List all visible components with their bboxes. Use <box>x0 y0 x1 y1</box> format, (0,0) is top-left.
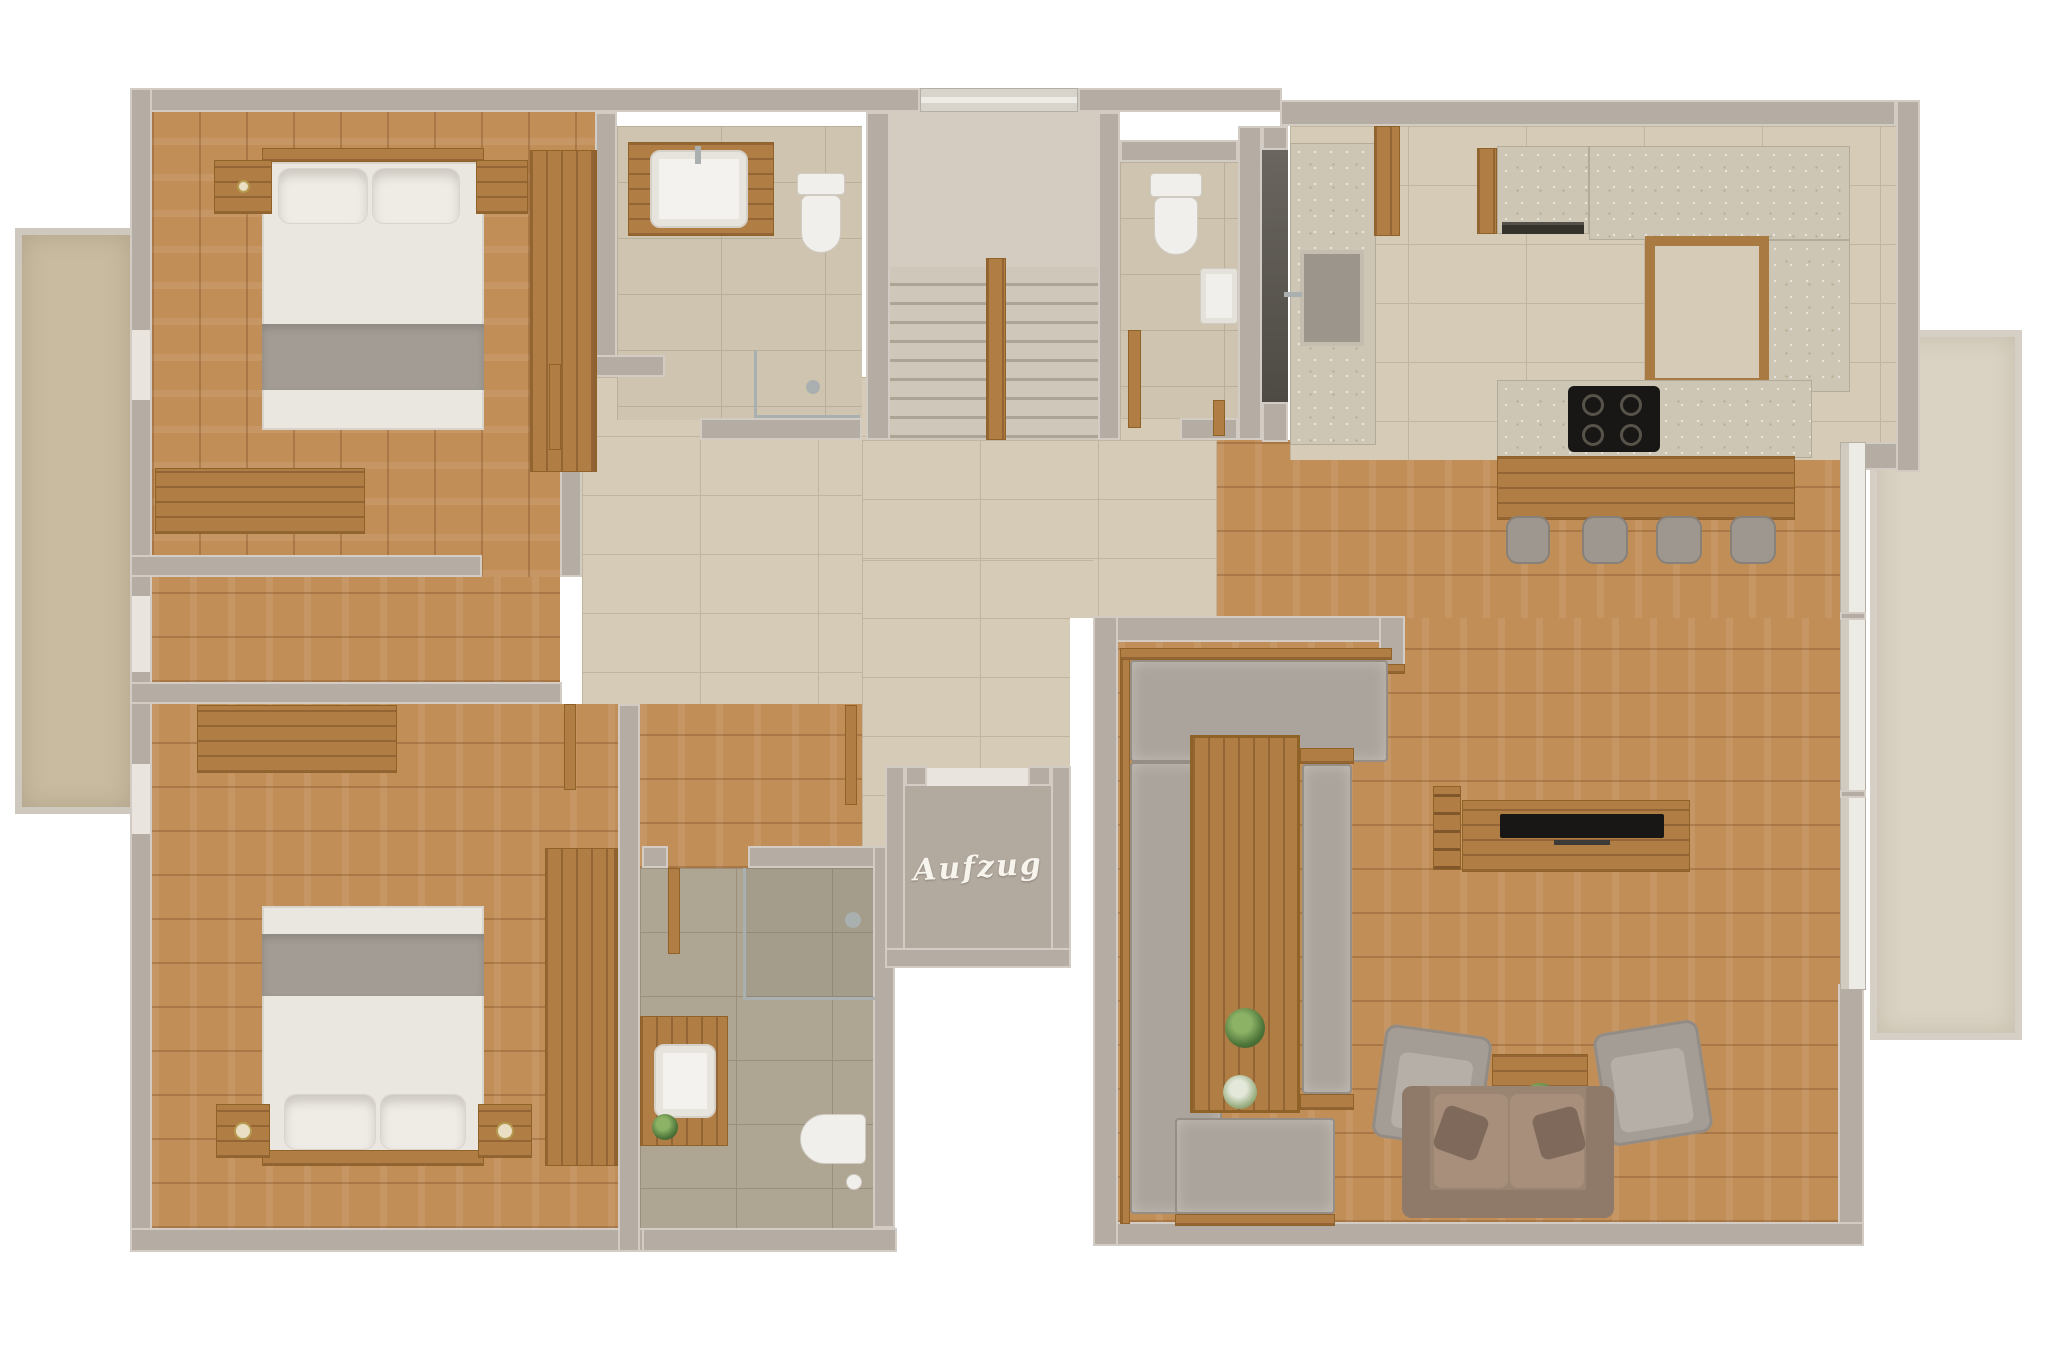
breakfast-bar <box>1497 456 1795 520</box>
kitchen-counter-right <box>1766 240 1850 392</box>
dining-table <box>1190 735 1300 1113</box>
window-mullion-1 <box>1840 612 1866 620</box>
window-mullion-2 <box>1840 790 1866 798</box>
stair-flight-left <box>890 267 988 440</box>
kitchen-sink-faucet <box>1284 292 1302 297</box>
cooktop-burner-1 <box>1582 394 1604 416</box>
sideboard-bedroom-2 <box>197 705 397 773</box>
wc-toilet-bowl <box>1154 197 1198 255</box>
balcony-door-left-2 <box>132 596 150 672</box>
living-window-wall <box>1840 442 1866 990</box>
balcony-door-left-1 <box>132 330 150 400</box>
dining-table-flower-icon <box>1223 1075 1257 1109</box>
balcony-door-left-3 <box>132 764 150 834</box>
cooktop-burner-2 <box>1620 394 1642 416</box>
wall-bathroom2-top-left <box>642 846 668 868</box>
hall-tile-passage <box>862 560 1093 618</box>
wall-bedroom2-north <box>130 682 562 704</box>
dining-bench-frame-left <box>1120 648 1130 1224</box>
shower-2-head-icon <box>845 912 861 928</box>
wall-stair-right <box>1098 112 1120 440</box>
wc-sink <box>1200 268 1238 324</box>
toilet-1-tank <box>797 173 845 195</box>
wall-elevator-top-left <box>905 766 927 786</box>
wall-right-kitchen <box>1896 100 1920 472</box>
dining-side-bench-cushion <box>1302 764 1352 1094</box>
bed-1-headboard <box>262 148 484 162</box>
tv <box>1500 814 1664 838</box>
cooktop <box>1568 386 1660 452</box>
wall-bathroom1-south-b <box>700 418 862 440</box>
stair-center-rail <box>986 258 1006 440</box>
nightstand-1-right <box>476 160 528 214</box>
bed-2-headboard <box>262 1150 484 1166</box>
bar-stool-3 <box>1656 516 1702 564</box>
kitchen-vent-grill <box>1502 222 1584 234</box>
bed-2-blanket <box>262 934 484 996</box>
dining-bench-frame-bottom <box>1175 1214 1335 1226</box>
floorplan: Aufzug <box>0 0 2048 1352</box>
kitchen-sink <box>1300 250 1364 346</box>
sofa <box>1402 1086 1614 1218</box>
ladder-shelf <box>1433 786 1461 870</box>
corridor-wood-floor <box>640 700 863 868</box>
lamp-1-left <box>237 180 250 193</box>
wall-right-lower <box>1838 984 1864 1246</box>
wardrobe-1 <box>530 150 597 472</box>
wall-bedroom2-right <box>618 704 640 1252</box>
toilet-2-bowl <box>800 1114 866 1164</box>
wall-elevator-left <box>885 766 905 968</box>
shower-2-tray <box>745 868 873 998</box>
bed-2-pillow-right <box>380 1094 466 1150</box>
bathroom-1-faucet <box>695 146 701 164</box>
shower-2-glass-side <box>743 868 746 1000</box>
wall-wc-right <box>1238 126 1262 440</box>
tv-stand <box>1554 840 1610 845</box>
bed-2-pillow-left <box>284 1094 376 1150</box>
sofa-arm-left <box>1402 1086 1430 1206</box>
wall-dining-top <box>1093 616 1405 642</box>
wall-wc-bottom <box>1180 418 1238 440</box>
wall-top-kitchen <box>1280 100 1896 126</box>
bedroom-2-door-leaf <box>564 704 576 790</box>
lamp-2-right <box>496 1122 514 1140</box>
wall-top-b <box>1078 88 1282 112</box>
wardrobe-2 <box>545 848 618 1166</box>
wall-stair-left <box>866 112 890 440</box>
balcony-left <box>15 228 137 814</box>
dining-table-plant-icon <box>1225 1008 1265 1048</box>
kitchen-block-top-left <box>1497 146 1589 234</box>
bed-1-blanket <box>262 324 484 390</box>
wall-elevator-right <box>1051 766 1071 968</box>
apartment-entry-door <box>1262 150 1288 402</box>
armchair-2-seat <box>1610 1047 1695 1134</box>
wall-bottom-bedroom2 <box>130 1228 644 1252</box>
toilet-1-bowl <box>801 195 841 253</box>
dining-side-bench-cap-top <box>1300 748 1354 764</box>
elevator-car: Aufzug <box>905 786 1051 948</box>
lamp-2-left <box>234 1122 252 1140</box>
dresser-bedroom-1 <box>155 468 365 534</box>
corridor-door-leaf <box>845 705 857 805</box>
bar-stool-1 <box>1506 516 1550 564</box>
bathroom-2-bin <box>846 1174 862 1190</box>
shower-1-head-icon <box>806 380 820 394</box>
wall-bathroom1-south-a <box>595 355 665 377</box>
shower-1-glass-front <box>754 415 860 418</box>
hall-west-wood-floor <box>152 577 560 682</box>
bed-1-pillow-left <box>278 168 368 224</box>
bathroom-2-plant-icon <box>652 1114 678 1140</box>
wall-bedroom1-south <box>130 555 482 577</box>
bed-1-pillow-right <box>372 168 460 224</box>
wall-entry-stub-bottom <box>1262 402 1288 442</box>
stair-flight-right <box>1006 267 1098 440</box>
stairwell-window <box>920 88 1078 112</box>
dining-side-bench-cap-bottom <box>1300 1094 1354 1110</box>
sofa-arm-right <box>1586 1086 1614 1206</box>
bathroom-2-sink <box>654 1044 716 1118</box>
stair-landing <box>890 112 1098 267</box>
cooktop-burner-3 <box>1582 424 1604 446</box>
kitchen-counter-top <box>1589 146 1850 240</box>
sofa-back <box>1402 1190 1614 1218</box>
wc-toilet-tank <box>1150 173 1202 197</box>
shower-2-glass-front <box>743 997 875 1000</box>
wall-bathroom1-left <box>595 112 617 377</box>
shower-1-glass-side <box>754 350 757 418</box>
wall-elevator-bottom <box>885 948 1071 968</box>
bar-stool-4 <box>1730 516 1776 564</box>
kitchen-cabinet-side-panel <box>1477 148 1497 234</box>
dining-bench-cushion-bottom <box>1175 1118 1335 1214</box>
dining-bench-frame-top <box>1120 648 1392 660</box>
bar-stool-2 <box>1582 516 1628 564</box>
wall-elevator-top-right <box>1028 766 1051 786</box>
bathroom-2-door-leaf <box>668 868 680 954</box>
bathroom-1-door-leaf <box>549 364 561 450</box>
kitchen-tall-shelf <box>1374 126 1400 236</box>
wall-top-a <box>130 88 920 112</box>
wc-door-leaf <box>1128 330 1141 428</box>
wall-entry-stub-top <box>1262 126 1288 150</box>
entry-door-leaf <box>1213 400 1225 436</box>
cooktop-burner-4 <box>1620 424 1642 446</box>
wall-living-left <box>1093 616 1118 1246</box>
kitchen-niche-wood-frame <box>1645 236 1769 388</box>
wall-bottom-bathroom2 <box>642 1228 897 1252</box>
elevator-door <box>927 768 1028 786</box>
elevator-label: Aufzug <box>912 846 1043 888</box>
wall-wc-top <box>1120 140 1238 162</box>
